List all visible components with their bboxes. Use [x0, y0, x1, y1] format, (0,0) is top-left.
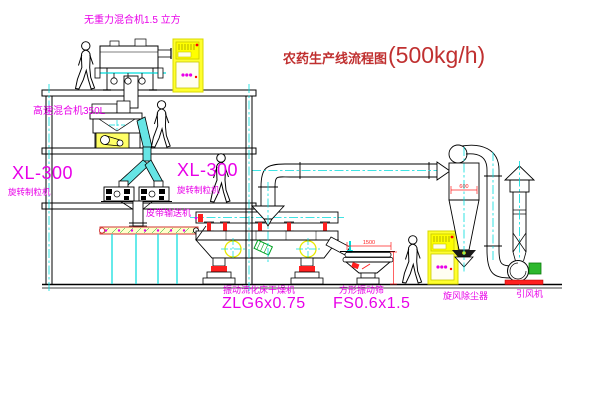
cad-process-flow-sheet: 600 15: [0, 0, 600, 403]
dryer-foot-right: [291, 258, 323, 284]
person-figure: [75, 42, 94, 89]
ground-line: [42, 285, 562, 289]
control-cabinet-top: [173, 39, 203, 92]
title-capacity: (500kg/h): [388, 42, 485, 69]
belt-conveyor: [99, 227, 198, 284]
gravity-free-mixer: [95, 39, 171, 108]
label-high-speed-mixer: 高速混合机350L: [33, 107, 105, 117]
sieve-length-dimension: 1500: [363, 240, 375, 246]
fluid-bed-dryer: [190, 212, 353, 284]
granulator-right: [136, 181, 172, 202]
label-granulator-left-name: 旋转制粒机: [8, 188, 51, 197]
mixer-paddles: [111, 73, 145, 84]
label-dryer-model: ZLG6x0.75: [222, 296, 306, 312]
title-chinese: 农药生产线流程图: [283, 48, 387, 67]
induced-draft-fan: [505, 261, 543, 285]
cyclone-to-fan-duct: [484, 152, 513, 278]
drawing-title: 农药生产线流程图(500kg/h): [283, 42, 485, 69]
dryer-foot-left: [203, 258, 235, 284]
label-cyclone: 旋风除尘器: [443, 292, 488, 301]
label-granulator-center-name: 旋转制粒机: [177, 186, 220, 195]
label-granulator-left-model: XL-300: [12, 164, 73, 182]
fan-motor: [529, 263, 541, 274]
label-belt-conveyor: 皮带输送机: [146, 209, 191, 218]
person-figure: [151, 101, 170, 147]
label-gravity-mixer: 无重力混合机1.5 立方: [84, 16, 181, 26]
cyclone-dust-collector: 600: [449, 145, 499, 272]
label-dryer-name: 振动流化床干燥机: [223, 286, 295, 295]
person-figure: [402, 236, 421, 283]
label-granulator-center-model: XL-300: [177, 161, 238, 179]
label-fan: 引风机: [516, 290, 543, 299]
label-sieve-name: 方形振动筛: [339, 286, 384, 295]
control-cabinet-dryer: [428, 231, 458, 284]
label-sieve-model: FS0.6x1.5: [333, 296, 410, 312]
granulator-left: [101, 181, 137, 202]
